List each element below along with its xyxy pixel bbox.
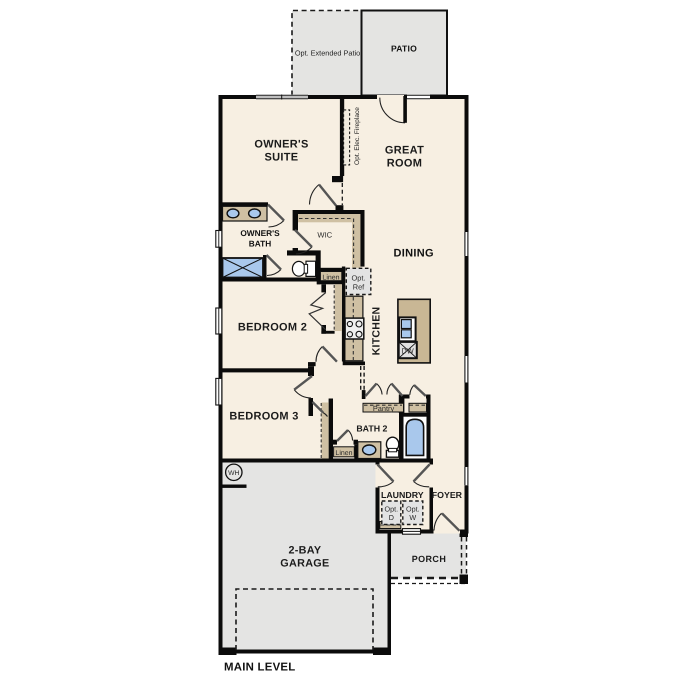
svg-text:Linen: Linen <box>322 273 339 281</box>
svg-text:Opt.: Opt. <box>352 274 366 283</box>
svg-text:PATIO: PATIO <box>391 44 417 54</box>
svg-text:BATH 2: BATH 2 <box>356 423 387 433</box>
svg-text:DINING: DINING <box>394 248 434 260</box>
svg-text:OWNER'S: OWNER'S <box>240 228 280 238</box>
svg-text:MAIN LEVEL: MAIN LEVEL <box>224 662 295 674</box>
svg-text:OWNER'S: OWNER'S <box>254 139 308 151</box>
svg-text:FOYER: FOYER <box>432 490 463 500</box>
svg-text:BEDROOM 3: BEDROOM 3 <box>229 411 298 423</box>
svg-text:Linen: Linen <box>335 449 352 457</box>
svg-text:Opt. Extended Patio: Opt. Extended Patio <box>295 48 360 57</box>
svg-text:Ref: Ref <box>353 283 365 292</box>
svg-text:BATH: BATH <box>249 238 271 248</box>
svg-text:DW: DW <box>401 346 413 355</box>
svg-text:GARAGE: GARAGE <box>280 558 329 570</box>
svg-text:GREAT: GREAT <box>385 145 424 157</box>
svg-text:BEDROOM 2: BEDROOM 2 <box>238 322 307 334</box>
svg-text:ROOM: ROOM <box>387 158 422 170</box>
svg-text:Pantry: Pantry <box>373 404 395 413</box>
svg-text:Opt. Elec. Fireplace: Opt. Elec. Fireplace <box>354 107 361 165</box>
svg-text:WH: WH <box>228 470 239 477</box>
svg-text:LAUNDRY: LAUNDRY <box>381 490 424 500</box>
svg-text:KITCHEN: KITCHEN <box>371 307 383 356</box>
svg-text:WIC: WIC <box>317 231 332 240</box>
svg-text:PORCH: PORCH <box>412 554 447 564</box>
svg-text:D: D <box>389 513 394 522</box>
svg-text:SUITE: SUITE <box>265 152 299 164</box>
svg-text:2-BAY: 2-BAY <box>288 545 321 557</box>
svg-text:W: W <box>409 513 416 522</box>
